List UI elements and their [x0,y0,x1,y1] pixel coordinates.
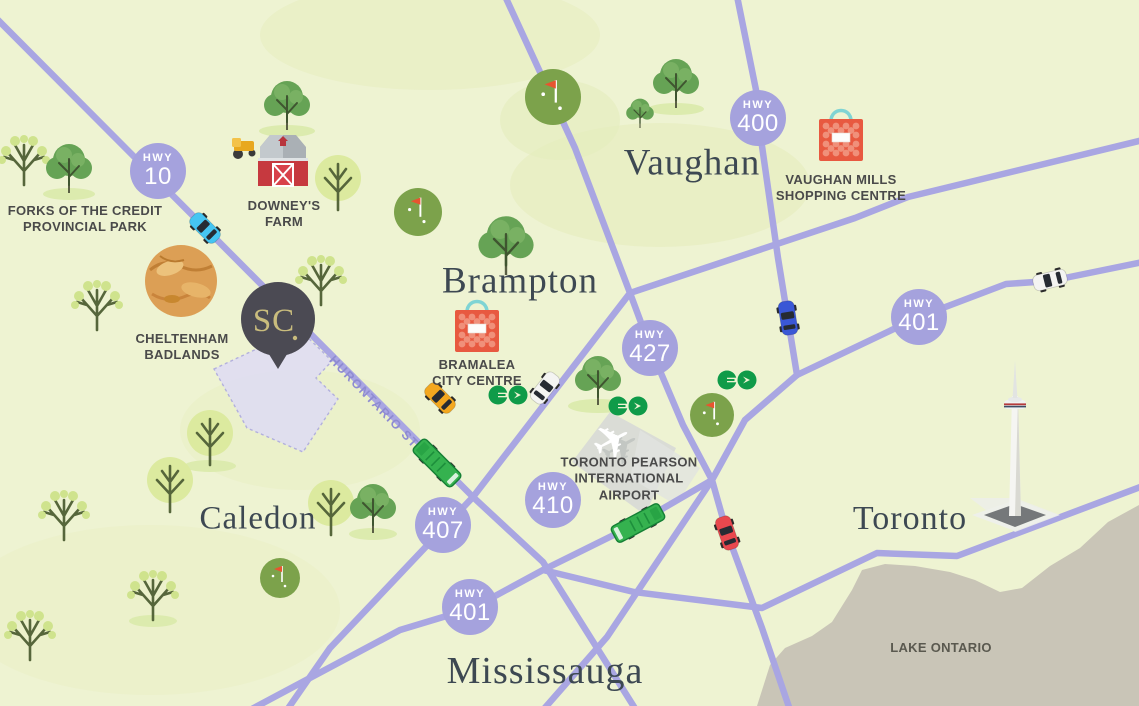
golf-course-icon [690,393,734,437]
hwy-427-badge: HWY 427 [622,320,678,376]
bare-tree-icon [71,280,123,330]
city-label-mississauga: Mississauga [447,649,644,693]
dark-tree-icon [350,484,396,533]
barn-icon [258,135,308,186]
hwy-badge-number: 427 [629,341,671,366]
golf-course-icon [260,558,300,598]
tractor-icon [232,138,256,159]
road-hwy401-northeast [797,262,1139,375]
golf-course-icon [525,69,581,125]
sc-logo-text: SC [253,303,295,339]
cn-tower-icon [970,360,1060,532]
dark-tree-icon [264,81,310,130]
label-pearson-airport: TORONTO PEARSON INTERNATIONAL AIRPORT [561,455,698,504]
navy-car-icon [775,300,800,337]
label-cheltenham-badlands: CHELTENHAM BADLANDS [135,331,228,364]
hwy-401-northeast-badge: HWY 401 [891,289,947,345]
hwy-400-badge: HWY 400 [730,90,786,146]
light-tree-icon [147,457,193,512]
red-car-icon [712,514,742,553]
hwy-badge-number: 400 [737,111,779,136]
golf-course-icon [394,188,442,236]
bare-tree-icon [0,135,50,185]
city-label-brampton: Brampton [442,260,598,303]
shopping-bag-icon [819,111,863,162]
go-bus-icon [410,436,463,489]
hwy-10-badge: HWY 10 [130,143,186,199]
dark-tree-icon [46,144,92,193]
gta-illustrated-map: ✈ ✈ SC HWY 10 HWY 400 HWY 427 HWY 401 [0,0,1139,706]
label-forks-of-the-credit: FORKS OF THE CREDIT PROVINCIAL PARK [8,203,162,236]
shopping-bag-icon [455,302,499,353]
city-label-vaughan: Vaughan [624,142,760,185]
dark-tree-icon [653,59,699,108]
hwy-badge-number: 401 [898,310,940,335]
label-downeys-farm: DOWNEY'S FARM [248,198,321,231]
label-bramalea-city-centre: BRAMALEA CITY CENTRE [432,357,522,390]
badlands-icon [145,245,217,317]
label-lake-ontario: LAKE ONTARIO [890,640,992,656]
hwy-407-badge: HWY 407 [415,497,471,553]
light-tree-icon [315,155,361,210]
hwy-badge-number: 10 [144,164,172,189]
white-car-icon [1031,266,1069,294]
label-vaughan-mills: VAUGHAN MILLS SHOPPING CENTRE [776,172,906,205]
downeys-farm-icons [232,135,308,186]
hwy-badge-number: 407 [422,518,464,543]
hwy-badge-number: 401 [449,600,491,625]
hwy-401-south-badge: HWY 401 [442,579,498,635]
city-label-toronto: Toronto [853,500,967,538]
city-label-caledon: Caledon [200,501,317,538]
go-transit-logo [718,371,757,390]
